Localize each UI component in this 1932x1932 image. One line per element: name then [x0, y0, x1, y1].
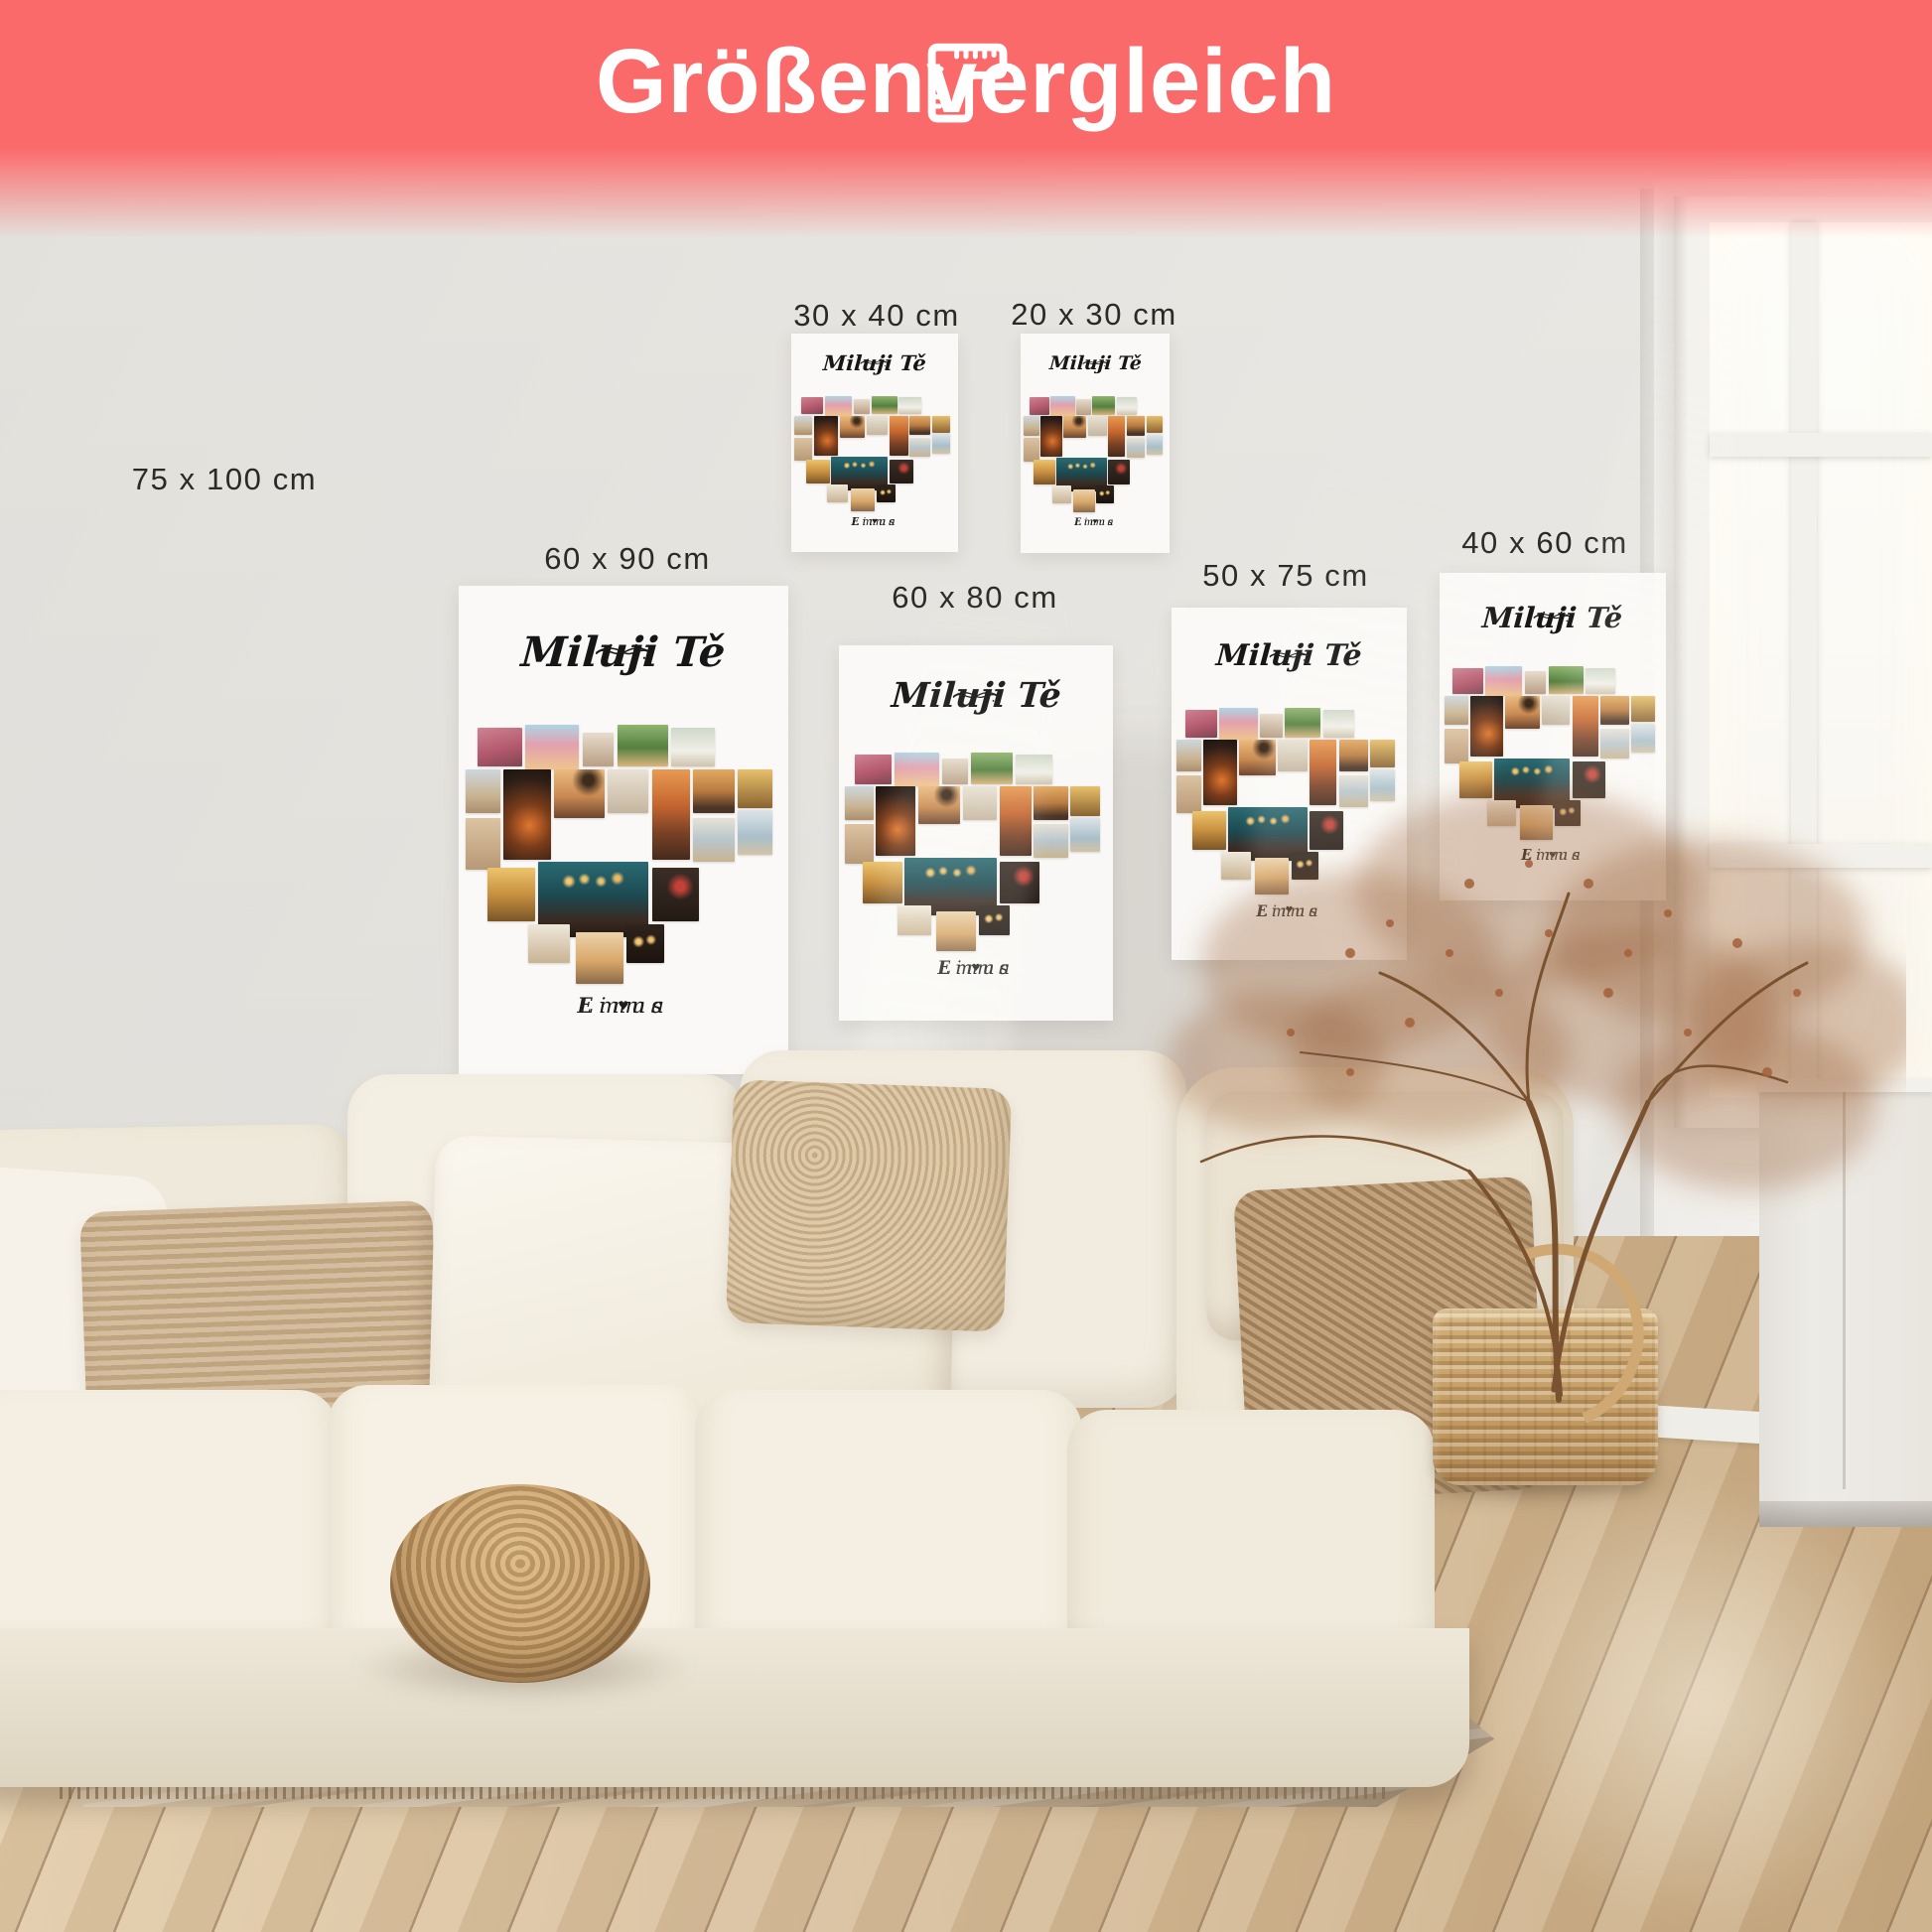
wicker-pouf: [390, 1484, 650, 1683]
sofa-base: [0, 1628, 1469, 1787]
banner-title: Größenvergleich: [596, 30, 1336, 134]
pillow-knit-beige: [726, 1079, 1012, 1332]
size-comparison-banner: Größenvergleich: [0, 0, 1932, 238]
size-comparison-scene: 75 x 100 cm30 x 40 cmMiluji TěLinus♥Emma…: [0, 0, 1932, 1932]
dried-plant: [1052, 635, 1906, 1430]
